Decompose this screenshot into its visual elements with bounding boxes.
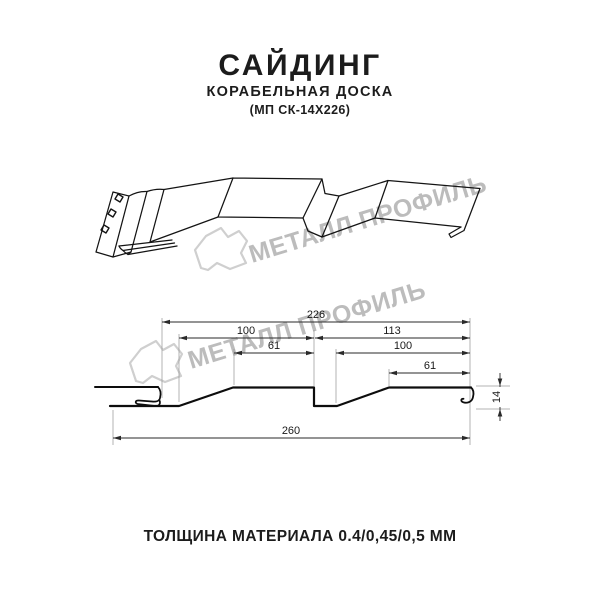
- profile-outline: [110, 388, 471, 407]
- dim-label-board2-width: 113: [383, 325, 401, 337]
- right-break-curl: [461, 388, 473, 403]
- product-drawing-page: САЙДИНГ КОРАБЕЛЬНАЯ ДОСКА (МП СК-14Х226)…: [0, 0, 600, 600]
- dim-label-board1-face: 61: [268, 340, 280, 352]
- technical-drawing-canvas: МЕТАЛЛ ПРОФИЛЬ МЕТАЛЛ ПРОФИЛЬ: [0, 0, 600, 600]
- profile-cross-section: [95, 387, 473, 406]
- nail-strip: [96, 192, 129, 257]
- dim-label-total-width: 260: [282, 425, 300, 437]
- dim-label-board2-inner: 100: [394, 340, 412, 352]
- dim-label-profile-height: 14: [491, 391, 503, 403]
- dim-label-board2-face: 61: [424, 360, 436, 372]
- dim-label-module-width: 226: [307, 309, 325, 321]
- dim-label-board1-width: 100: [237, 325, 255, 337]
- interlock-curl: [136, 387, 161, 406]
- watermark-logo-icon: [195, 228, 247, 270]
- lock-fold: [113, 189, 177, 257]
- watermark-text: МЕТАЛЛ ПРОФИЛЬ: [246, 170, 491, 269]
- watermark-logo-icon: [130, 341, 182, 383]
- thickness-note: ТОЛЩИНА МАТЕРИАЛА 0.4/0,45/0,5 ММ: [0, 528, 600, 546]
- nail-strip-holes: [101, 194, 123, 233]
- watermark-upper: МЕТАЛЛ ПРОФИЛЬ: [195, 170, 490, 270]
